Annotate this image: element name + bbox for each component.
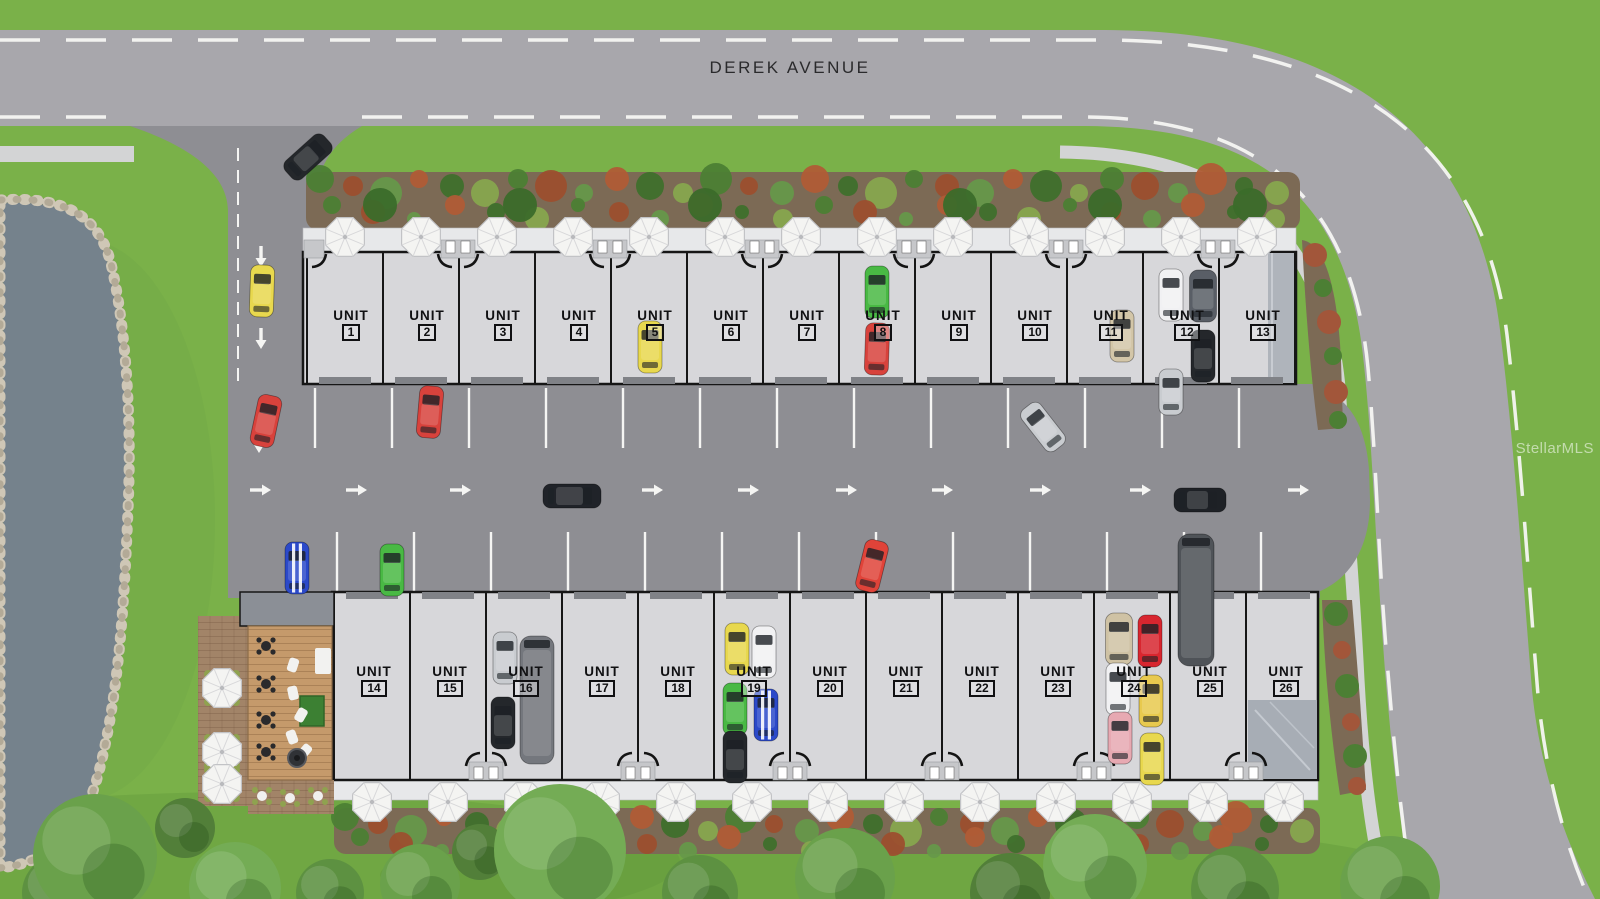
car bbox=[1106, 613, 1133, 665]
patio-umbrella bbox=[1086, 218, 1125, 257]
car bbox=[723, 731, 747, 783]
unit-label-7: UNIT7 bbox=[775, 308, 839, 341]
patio-umbrella bbox=[706, 218, 745, 257]
car bbox=[1140, 733, 1164, 785]
unit-label-10: UNIT10 bbox=[1003, 308, 1067, 341]
van bbox=[520, 636, 554, 764]
unit-label-11: UNIT11 bbox=[1079, 308, 1143, 341]
unit-label-16: UNIT16 bbox=[494, 664, 558, 697]
unit-label-24: UNIT24 bbox=[1102, 664, 1166, 697]
patio-umbrella bbox=[554, 218, 593, 257]
tree bbox=[155, 798, 215, 858]
unit-label-17: UNIT17 bbox=[570, 664, 634, 697]
car bbox=[1174, 488, 1226, 512]
patio-umbrella bbox=[478, 218, 517, 257]
unit-label-2: UNIT2 bbox=[395, 308, 459, 341]
patio-umbrella bbox=[885, 783, 924, 822]
patio-umbrella bbox=[657, 783, 696, 822]
patio-umbrella bbox=[733, 783, 772, 822]
patio-umbrella bbox=[353, 783, 392, 822]
patio-umbrella bbox=[1010, 218, 1049, 257]
unit-label-20: UNIT20 bbox=[798, 664, 862, 697]
unit-label-19: UNIT19 bbox=[722, 664, 786, 697]
car bbox=[491, 697, 515, 749]
patio-umbrella bbox=[203, 669, 242, 708]
patio-umbrella bbox=[1238, 218, 1277, 257]
unit-label-26: UNIT26 bbox=[1254, 664, 1318, 697]
patio-umbrella bbox=[934, 218, 973, 257]
patio-umbrella bbox=[1037, 783, 1076, 822]
unit-label-1: UNIT1 bbox=[319, 308, 383, 341]
car bbox=[543, 484, 601, 508]
unit-label-14: UNIT14 bbox=[342, 664, 406, 697]
unit-label-15: UNIT15 bbox=[418, 664, 482, 697]
unit-label-9: UNIT9 bbox=[927, 308, 991, 341]
unit-label-3: UNIT3 bbox=[471, 308, 535, 341]
patio-umbrella bbox=[326, 218, 365, 257]
car bbox=[249, 265, 275, 318]
patio-umbrella bbox=[858, 218, 897, 257]
fire-pit bbox=[288, 749, 306, 767]
site-plan-rendering bbox=[0, 0, 1600, 899]
unit-label-13: UNIT13 bbox=[1231, 308, 1295, 341]
patio-umbrella bbox=[1113, 783, 1152, 822]
patio-umbrella bbox=[1265, 783, 1304, 822]
patio-umbrella bbox=[1189, 783, 1228, 822]
street-name: DEREK AVENUE bbox=[640, 58, 940, 78]
patio-umbrella bbox=[782, 218, 821, 257]
unit-label-23: UNIT23 bbox=[1026, 664, 1090, 697]
patio-umbrella bbox=[429, 783, 468, 822]
patio-umbrella bbox=[809, 783, 848, 822]
car bbox=[416, 385, 444, 439]
unit-label-22: UNIT22 bbox=[950, 664, 1014, 697]
site-plan: DEREK AVENUE StellarMLS UNIT1UNIT2UNIT3U… bbox=[0, 0, 1600, 899]
unit-label-21: UNIT21 bbox=[874, 664, 938, 697]
patio-umbrella bbox=[203, 765, 242, 804]
unit-label-4: UNIT4 bbox=[547, 308, 611, 341]
unit-label-6: UNIT6 bbox=[699, 308, 763, 341]
unit-label-18: UNIT18 bbox=[646, 664, 710, 697]
car bbox=[1108, 712, 1132, 764]
car bbox=[380, 544, 404, 596]
van bbox=[1178, 534, 1214, 666]
patio-umbrella bbox=[402, 218, 441, 257]
unit-label-25: UNIT25 bbox=[1178, 664, 1242, 697]
car bbox=[1159, 369, 1183, 415]
unit-label-12: UNIT12 bbox=[1155, 308, 1219, 341]
unit-label-5: UNIT5 bbox=[623, 308, 687, 341]
car bbox=[285, 542, 309, 594]
car bbox=[1138, 615, 1162, 667]
patio-umbrella bbox=[630, 218, 669, 257]
mls-watermark: StellarMLS bbox=[1516, 440, 1594, 457]
unit-label-8: UNIT8 bbox=[851, 308, 915, 341]
patio-umbrella bbox=[1162, 218, 1201, 257]
patio-umbrella bbox=[961, 783, 1000, 822]
